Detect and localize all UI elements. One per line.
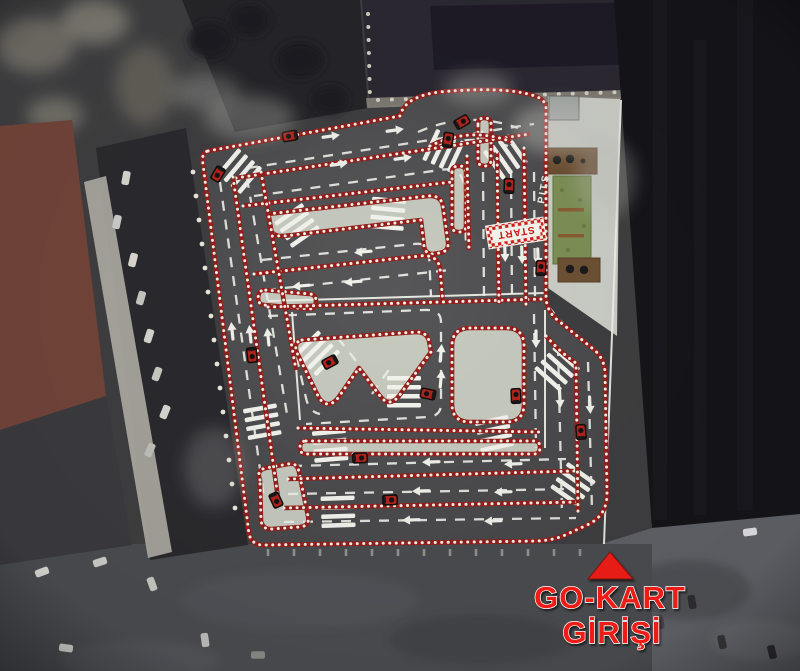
entrance-sign-line2: GİRİŞİ <box>562 615 661 650</box>
gokart-track-aerial-view: START PITS GO-KART GİRİŞİ <box>0 0 800 671</box>
vignette <box>0 0 800 671</box>
aerial-photo-stage: START PITS GO-KART GİRİŞİ <box>0 0 800 671</box>
entrance-sign-line1: GO-KART <box>534 580 686 615</box>
